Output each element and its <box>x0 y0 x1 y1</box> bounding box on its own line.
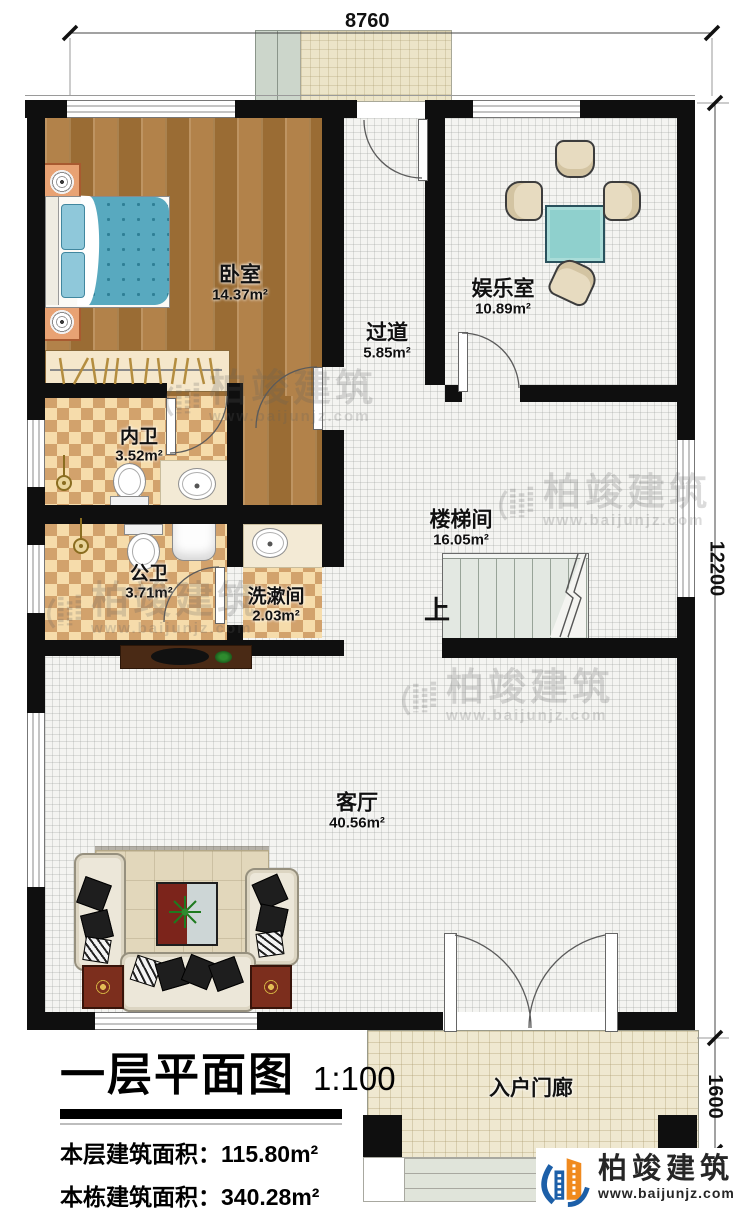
chair-north <box>555 140 595 178</box>
door-leaf-entry-left <box>444 933 457 1032</box>
company-logo-icon <box>536 1151 590 1207</box>
ensuite-sink <box>178 468 216 500</box>
label-bedroom: 卧室14.37m² <box>212 264 268 303</box>
tv <box>151 648 209 665</box>
wall-bedroom-ensuite <box>27 383 167 398</box>
wall <box>27 1012 95 1030</box>
wall-ensuite-publicbath <box>27 505 344 524</box>
tv-console <box>120 645 252 669</box>
watermark: 柏竣建筑www.baijunjz.com <box>396 669 614 725</box>
title-block: 一层平面图 1:100 本层建筑面积：115.80m² 本栋建筑面积：340.2… <box>60 1038 442 1220</box>
door-leaf-entry-right <box>605 933 618 1032</box>
watermark-logo-icon <box>396 675 440 719</box>
wall-publicbath-washroom <box>227 524 243 567</box>
watermark: 柏竣建筑www.baijunjz.com <box>41 582 259 638</box>
end-table-left <box>82 965 124 1009</box>
bed-pillow-1 <box>61 204 85 250</box>
terrace-tile <box>300 30 452 102</box>
watermark: 柏竣建筑www.baijunjz.com <box>159 370 377 426</box>
floor-plan-canvas: 卧室14.37m² 内卫3.52m² 公卫3.71m² 洗漱间2.03m² 过道… <box>0 0 750 1220</box>
label-stairwell: 楼梯间16.05m² <box>430 509 493 548</box>
stairs <box>442 553 589 640</box>
label-living-room: 客厅40.56m² <box>329 792 385 831</box>
watermark: 柏竣建筑www.baijunjz.com <box>493 474 711 530</box>
wall-hallway-entertainment <box>425 118 445 385</box>
wall-stairs-south <box>442 638 695 658</box>
pillow-striped <box>255 930 284 957</box>
window-entertainment-top <box>473 100 580 118</box>
nightstand-bottom <box>43 303 81 341</box>
label-hallway: 过道5.85m² <box>363 322 411 361</box>
watermark-logo-icon <box>41 588 85 632</box>
window-bedroom-top <box>67 100 235 118</box>
stat-floor-area-label: 本层建筑面积： <box>60 1141 221 1167</box>
wall-bedroom-hallway <box>322 118 344 367</box>
stat-building-area-value: 340.28m² <box>221 1184 319 1210</box>
game-table <box>545 205 605 263</box>
coffee-table <box>156 882 218 946</box>
wall <box>677 597 695 1030</box>
company-logo-name: 柏竣建筑 <box>598 1155 735 1184</box>
terrace-planter-divider <box>277 31 278 101</box>
chair-west <box>505 181 543 221</box>
label-entertainment: 娱乐室10.89m² <box>472 278 535 317</box>
title-underline-thin <box>60 1123 342 1125</box>
window-living-left <box>27 713 45 887</box>
stat-building-area-label: 本栋建筑面积： <box>60 1184 221 1210</box>
window-ensuite-left <box>27 420 45 487</box>
watermark-logo-icon <box>493 480 537 524</box>
wall <box>27 887 45 1030</box>
company-logo: 柏竣建筑 www.baijunjz.com <box>536 1148 750 1210</box>
pillow-striped <box>82 936 111 964</box>
wall <box>257 1012 443 1030</box>
bed-headboard <box>46 197 59 305</box>
dim-right-height: 12200 <box>704 541 727 597</box>
wall <box>617 1012 695 1030</box>
watermark-logo-icon <box>159 376 203 420</box>
title-underline-thick <box>60 1109 342 1119</box>
stairs-up-label: 上 <box>424 590 450 627</box>
roof-eave-line <box>25 95 695 96</box>
end-table-right <box>250 965 292 1009</box>
label-ensuite-bath: 内卫3.52m² <box>115 427 163 464</box>
console-plant <box>215 651 232 663</box>
company-logo-url: www.baijunjz.com <box>598 1184 735 1202</box>
page-title: 一层平面图 <box>60 1038 295 1103</box>
wall-passage-stairhall <box>322 430 344 567</box>
terrace-planter <box>255 30 302 102</box>
dim-porch-depth: 1600 <box>703 1074 726 1119</box>
window-living-bottom <box>95 1012 257 1030</box>
chair-east <box>603 181 641 221</box>
door-leaf-entertainment <box>458 332 468 392</box>
dim-top-width: 8760 <box>345 10 390 33</box>
washroom-sink <box>252 528 288 558</box>
bed <box>45 196 170 308</box>
wall <box>235 100 357 118</box>
stat-floor-area-value: 115.80m² <box>221 1141 318 1167</box>
door-leaf-terrace <box>418 119 428 181</box>
wall <box>27 100 45 420</box>
label-entry-porch: 入户门廊 <box>489 1078 573 1100</box>
ensuite-toilet-bowl <box>113 463 146 500</box>
wall <box>425 100 473 118</box>
bed-pillow-2 <box>61 252 85 298</box>
wall-entertainment-south <box>520 385 695 402</box>
drawing-scale: 1:100 <box>313 1060 396 1098</box>
